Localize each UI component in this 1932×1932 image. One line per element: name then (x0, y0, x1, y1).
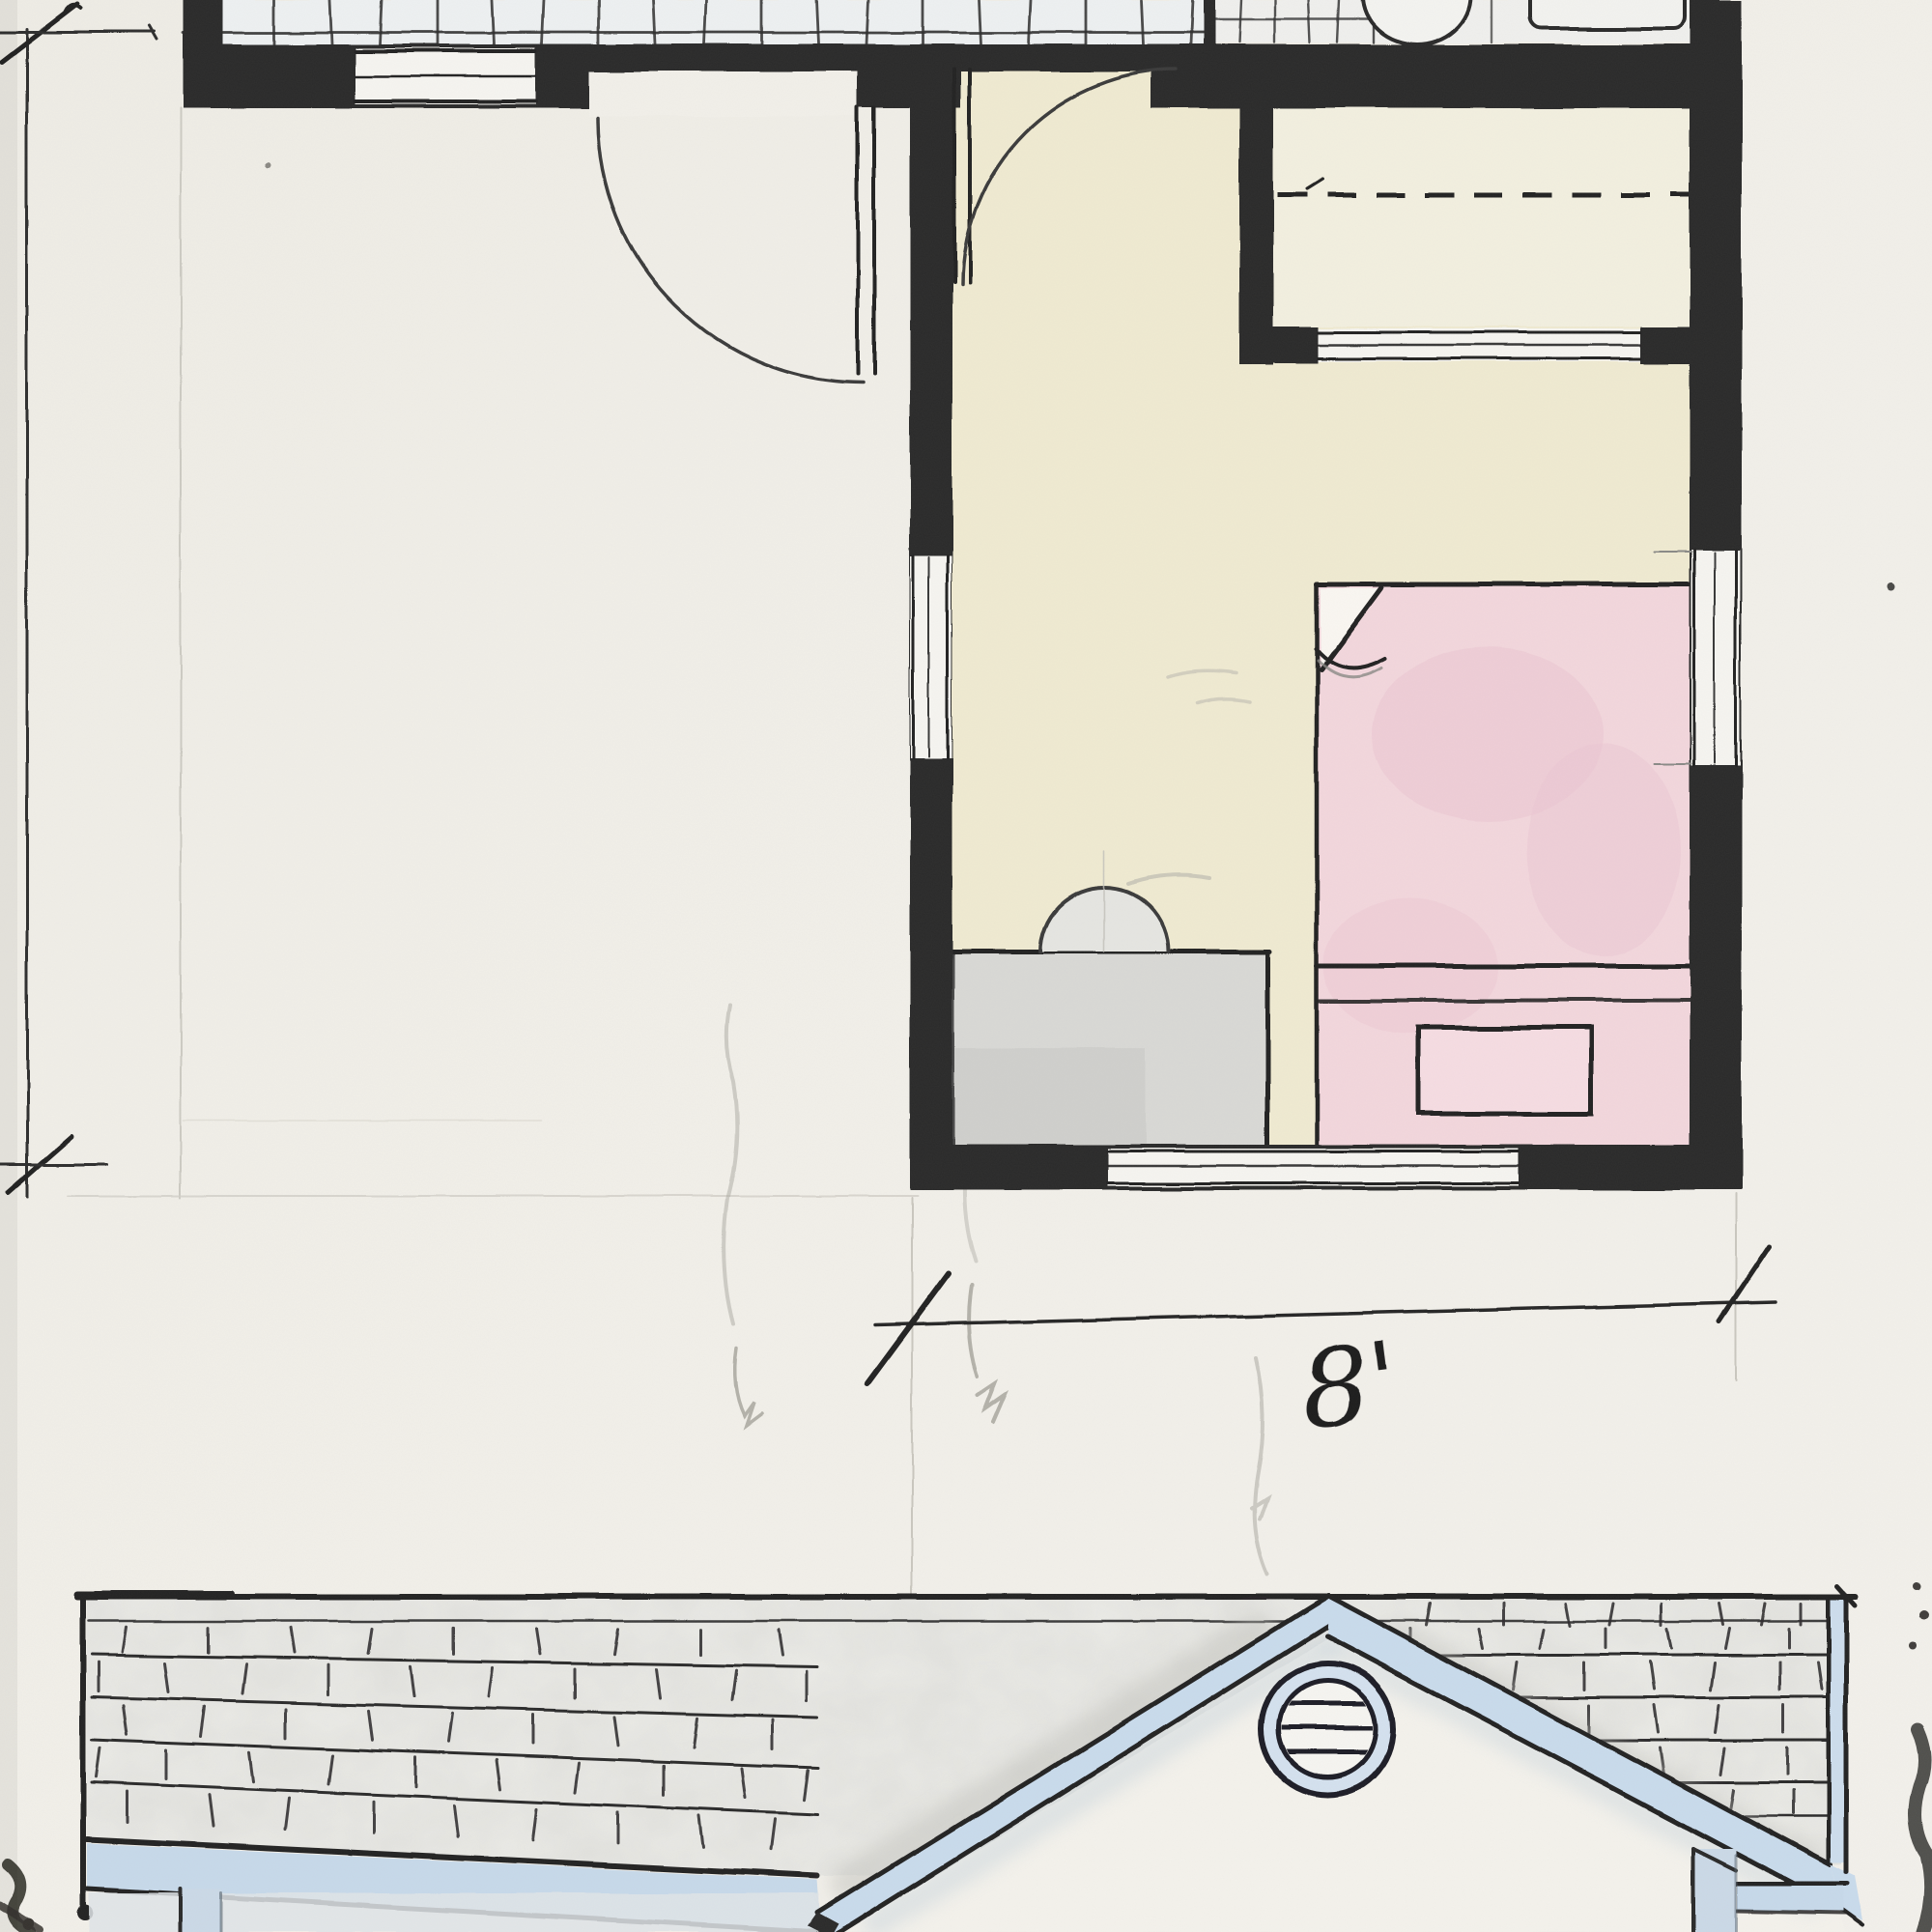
window-interior (911, 556, 952, 759)
photo-edge-shadow (0, 0, 17, 1932)
shrub-dot (1919, 1610, 1929, 1620)
wall-deck-bath-divider (1204, 0, 1215, 46)
right-fascia-bottom (1737, 1911, 1845, 1913)
dimension-label: 8' (1293, 1319, 1406, 1455)
floor-plan-and-elevation-drawing: 8' (0, 0, 1932, 1932)
door-opening-entry (961, 71, 1151, 116)
deck-boards (1029, 0, 1031, 44)
deck-boards (542, 0, 544, 44)
ink-speck (1888, 583, 1895, 591)
window-bottom (1107, 1149, 1519, 1186)
shrub-dot (1913, 1582, 1920, 1590)
deck-boards (492, 0, 494, 44)
closet-floor (1273, 106, 1690, 327)
ink-speck (264, 163, 270, 169)
bed-pink-blotch (1526, 744, 1681, 956)
shrub-dot (23, 1918, 35, 1930)
deck-boards (704, 0, 706, 44)
deck-boards (979, 0, 980, 44)
deck-boards (1191, 0, 1193, 44)
right-fascia-blue (1737, 1886, 1843, 1911)
deck-floor (184, 0, 1204, 44)
door-opening-main (589, 71, 858, 116)
wall-deck-corner (184, 0, 222, 48)
shrub-dot (1909, 1642, 1917, 1650)
porch-post-left (180, 1889, 220, 1932)
sketch-photo: 8' (0, 0, 1932, 1932)
layer-elevation (0, 1546, 1932, 1932)
bed-foot-chest (1419, 1028, 1591, 1114)
bath-tub (1530, 0, 1685, 29)
deck-boards (816, 0, 818, 44)
deck-boards (654, 0, 656, 44)
dresser-shade (952, 1048, 1146, 1145)
deck-boards (380, 0, 382, 44)
deck-boards (329, 0, 331, 44)
deck-boards (867, 0, 868, 44)
wall-closet-left (1239, 77, 1273, 365)
deck-boards (1141, 0, 1143, 44)
wall-closet-bottom-left (1239, 327, 1319, 363)
roof-right-rake-fill (1831, 1600, 1844, 1862)
